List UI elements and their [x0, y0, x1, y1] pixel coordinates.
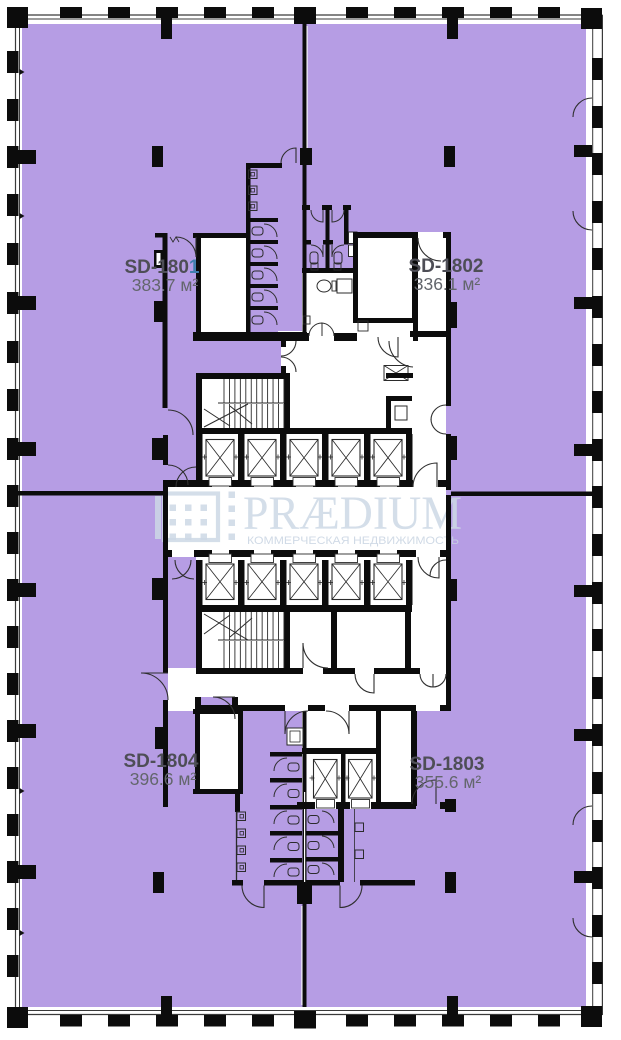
- svg-text:КОММЕРЧЕСКАЯ НЕДВИЖИМОСТЬ: КОММЕРЧЕСКАЯ НЕДВИЖИМОСТЬ: [247, 535, 459, 547]
- svg-text:355.6 м²: 355.6 м²: [415, 772, 482, 792]
- svg-text:336.1 м²: 336.1 м²: [414, 274, 481, 294]
- svg-text:383.7 м²: 383.7 м²: [132, 275, 199, 295]
- svg-text:PRÆDIUM: PRÆDIUM: [243, 487, 462, 540]
- svg-text:396.6 м²: 396.6 м²: [130, 769, 197, 789]
